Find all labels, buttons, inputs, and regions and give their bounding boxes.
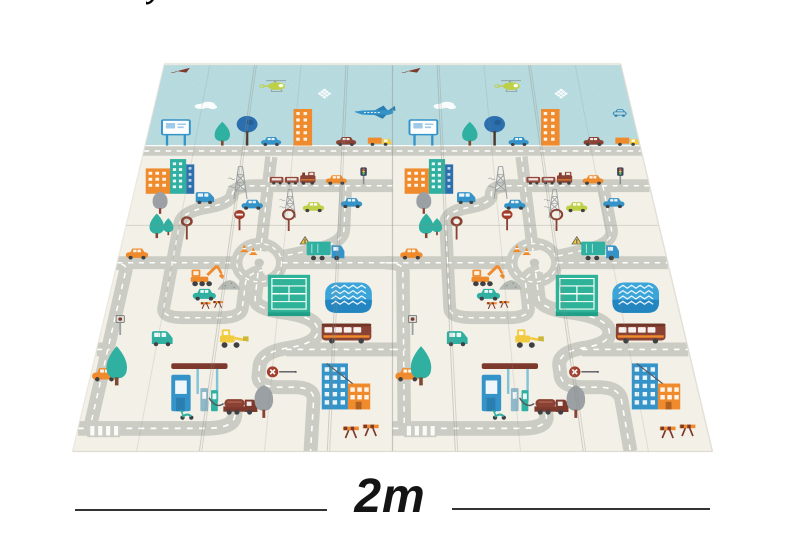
crosswalk — [87, 424, 120, 437]
tennis-court — [268, 275, 310, 316]
crosswalk — [404, 424, 437, 437]
dimension-label: 2m — [330, 473, 450, 521]
play-mat — [73, 64, 713, 452]
cropped-text-fragment: y — [146, 0, 176, 9]
building — [541, 109, 560, 146]
pond — [325, 282, 372, 312]
tennis-court — [556, 275, 598, 316]
page-background: y 2m — [0, 0, 800, 560]
